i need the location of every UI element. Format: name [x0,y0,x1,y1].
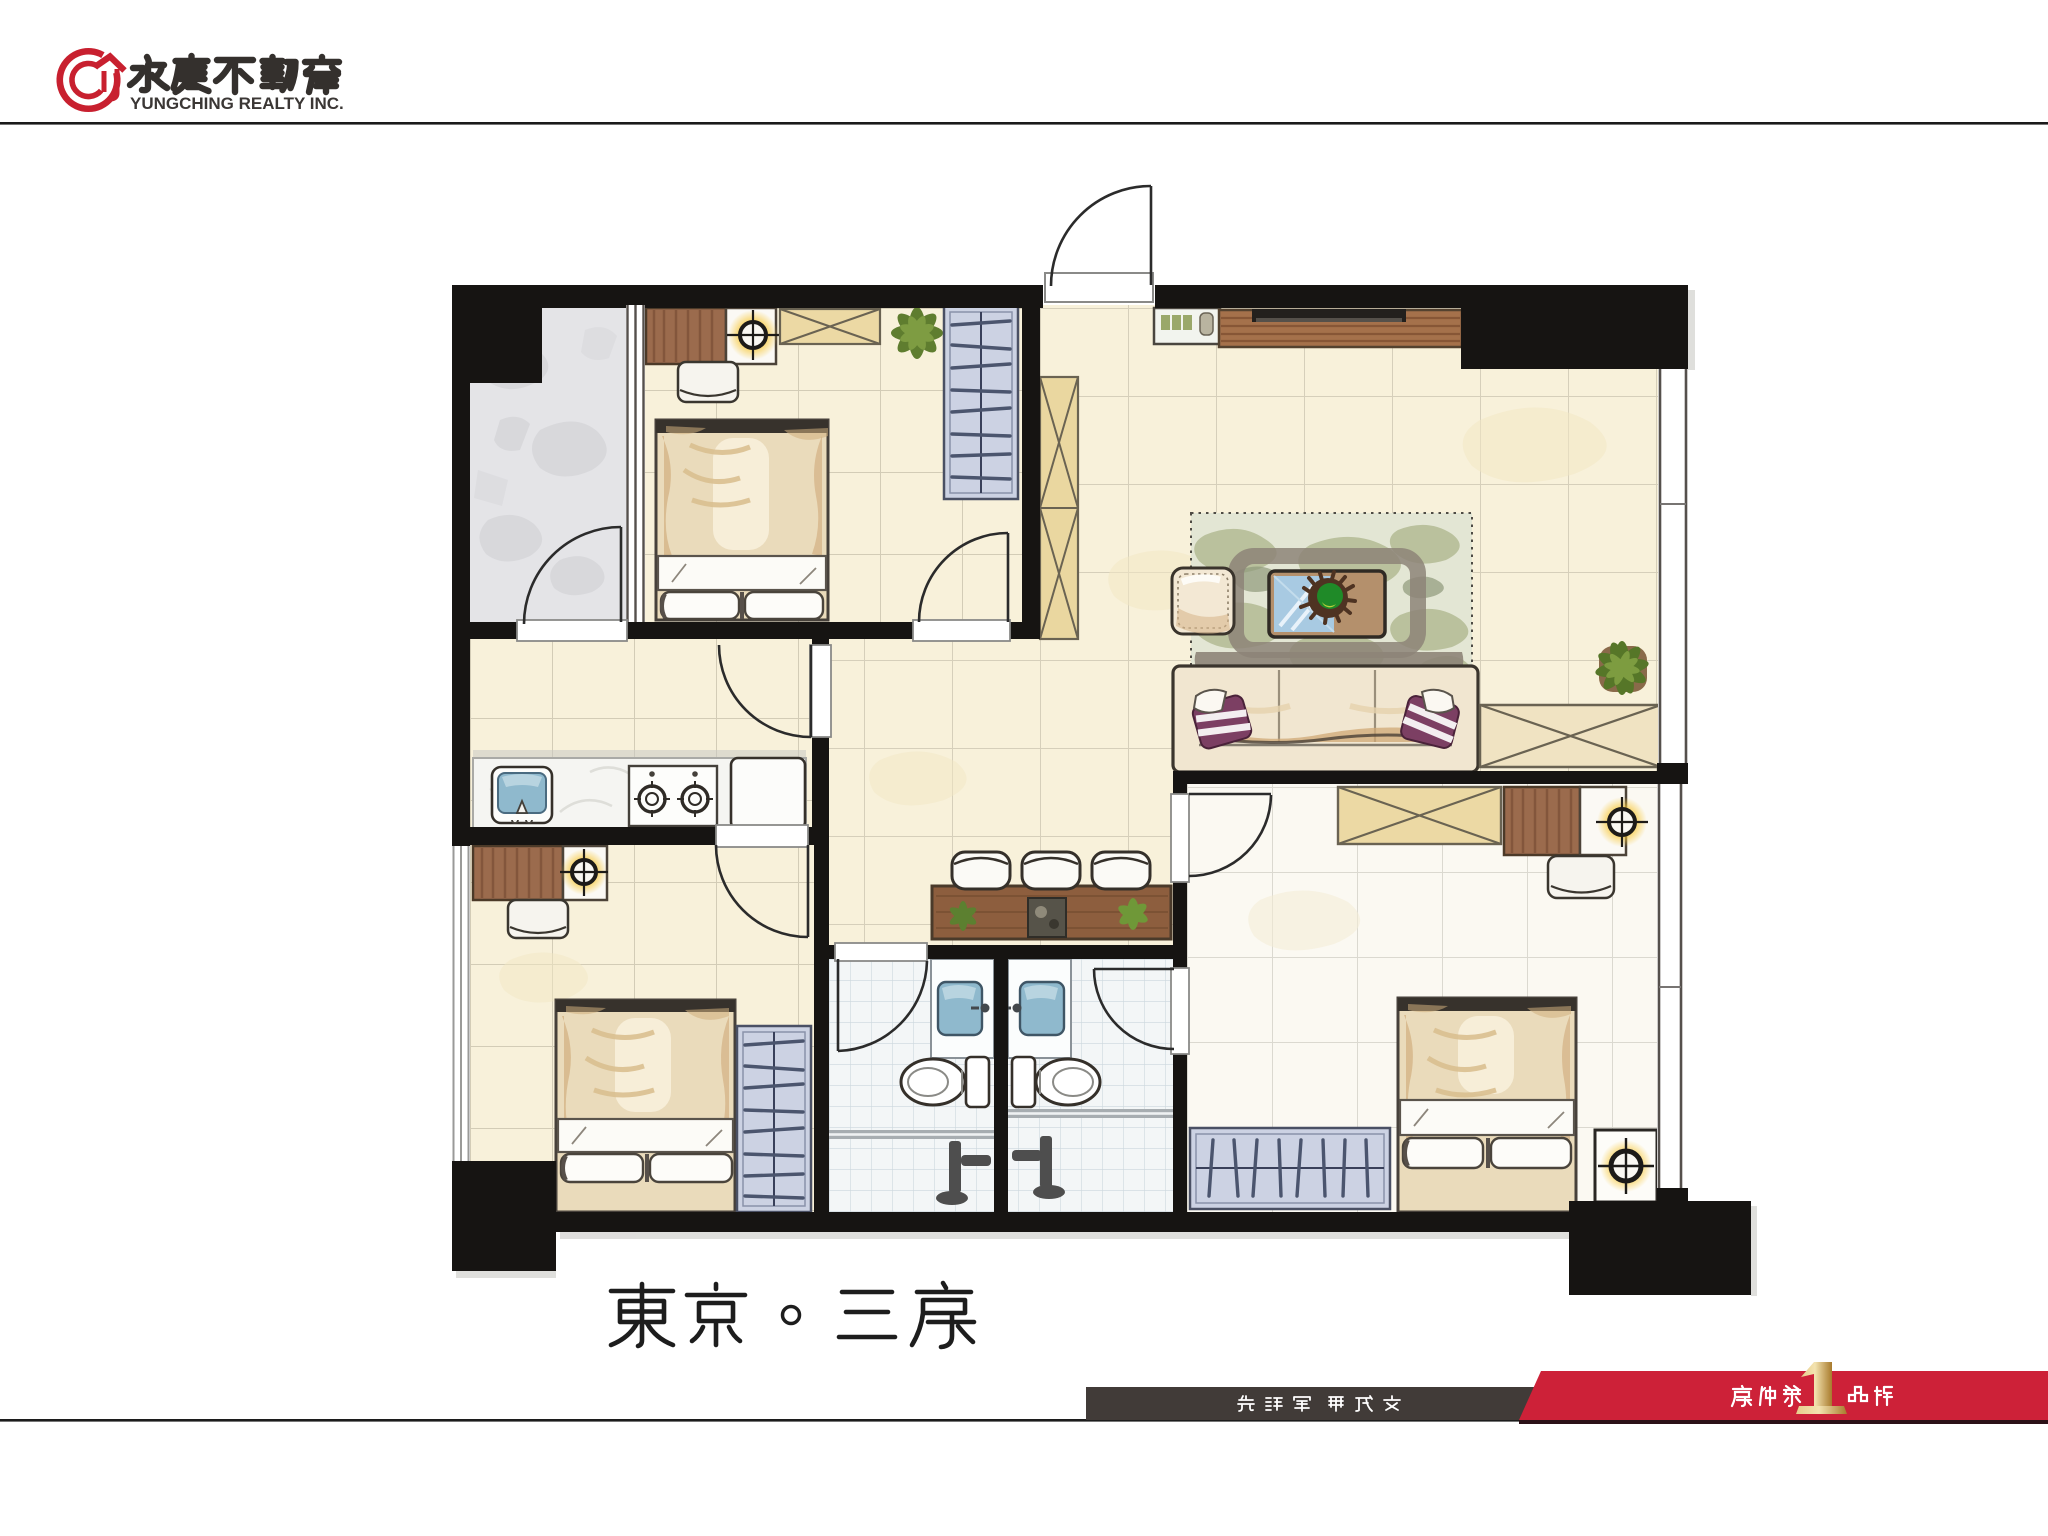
svg-text:YUNGCHING REALTY INC.: YUNGCHING REALTY INC. [130,94,344,113]
